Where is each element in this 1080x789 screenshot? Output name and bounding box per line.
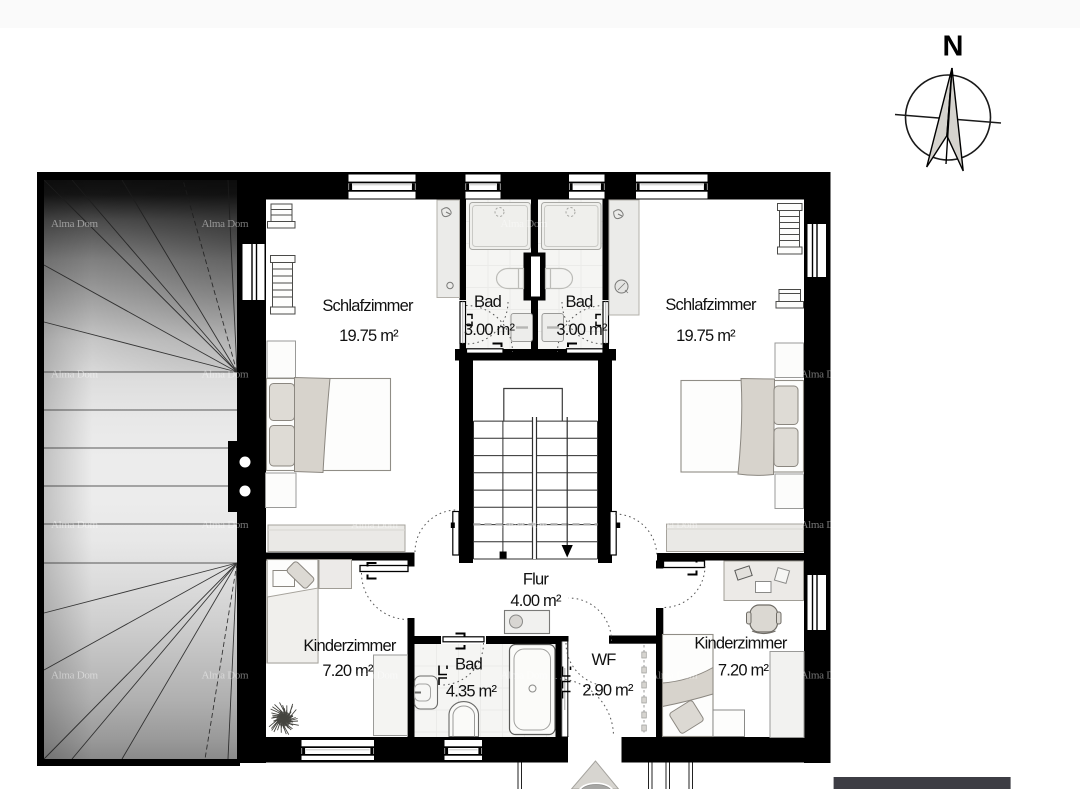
svg-text:Alma Dom: Alma Dom xyxy=(351,519,399,531)
svg-text:Alma Dom: Alma Dom xyxy=(501,369,549,381)
svg-text:7.20 m²: 7.20 m² xyxy=(718,662,770,680)
svg-text:Bad: Bad xyxy=(474,293,502,311)
svg-text:Alma Dom: Alma Dom xyxy=(651,218,699,230)
svg-text:2.90 m²: 2.90 m² xyxy=(582,682,634,700)
svg-text:4.00 m²: 4.00 m² xyxy=(510,592,562,610)
svg-text:Alma Dom: Alma Dom xyxy=(501,218,549,230)
svg-text:Kinderzimmer: Kinderzimmer xyxy=(694,635,787,653)
svg-text:Alma Dom: Alma Dom xyxy=(202,519,250,531)
svg-text:4.35 m²: 4.35 m² xyxy=(446,683,498,701)
svg-text:Alma Dom: Alma Dom xyxy=(501,519,549,531)
svg-text:Alma Dom: Alma Dom xyxy=(351,218,399,230)
svg-text:Alma Dom: Alma Dom xyxy=(202,670,250,682)
svg-text:Flur: Flur xyxy=(523,571,550,589)
svg-text:Schlafzimmer: Schlafzimmer xyxy=(665,296,757,314)
svg-text:Kinderzimmer: Kinderzimmer xyxy=(303,637,396,655)
svg-text:Alma Dom: Alma Dom xyxy=(51,218,99,230)
svg-text:3.00 m²: 3.00 m² xyxy=(464,321,516,339)
svg-text:Alma Dom: Alma Dom xyxy=(351,670,399,682)
svg-text:Alma Dom: Alma Dom xyxy=(51,519,99,531)
svg-text:Schlafzimmer: Schlafzimmer xyxy=(322,297,414,315)
svg-text:Alma Dom: Alma Dom xyxy=(501,670,549,682)
svg-text:Alma Dom: Alma Dom xyxy=(51,670,99,682)
svg-text:Alma Dom: Alma Dom xyxy=(202,369,250,381)
svg-text:Alma Dom: Alma Dom xyxy=(801,519,849,531)
svg-text:Alma Dom: Alma Dom xyxy=(651,519,699,531)
svg-text:Bad: Bad xyxy=(455,656,483,674)
svg-text:Alma Dom: Alma Dom xyxy=(651,369,699,381)
svg-text:Bad: Bad xyxy=(566,293,594,311)
svg-text:Alma Dom: Alma Dom xyxy=(51,369,99,381)
svg-text:19.75 m²: 19.75 m² xyxy=(676,327,736,345)
svg-text:3.00 m²: 3.00 m² xyxy=(556,321,608,339)
svg-text:Alma Dom: Alma Dom xyxy=(651,670,699,682)
svg-text:Alma Dom: Alma Dom xyxy=(351,369,399,381)
svg-text:N: N xyxy=(943,31,964,63)
svg-text:19.75 m²: 19.75 m² xyxy=(339,327,399,345)
svg-text:Alma Dom: Alma Dom xyxy=(801,369,849,381)
svg-text:WF: WF xyxy=(591,651,616,669)
svg-text:Alma Dom: Alma Dom xyxy=(202,218,250,230)
svg-text:Alma Dom: Alma Dom xyxy=(801,670,849,682)
